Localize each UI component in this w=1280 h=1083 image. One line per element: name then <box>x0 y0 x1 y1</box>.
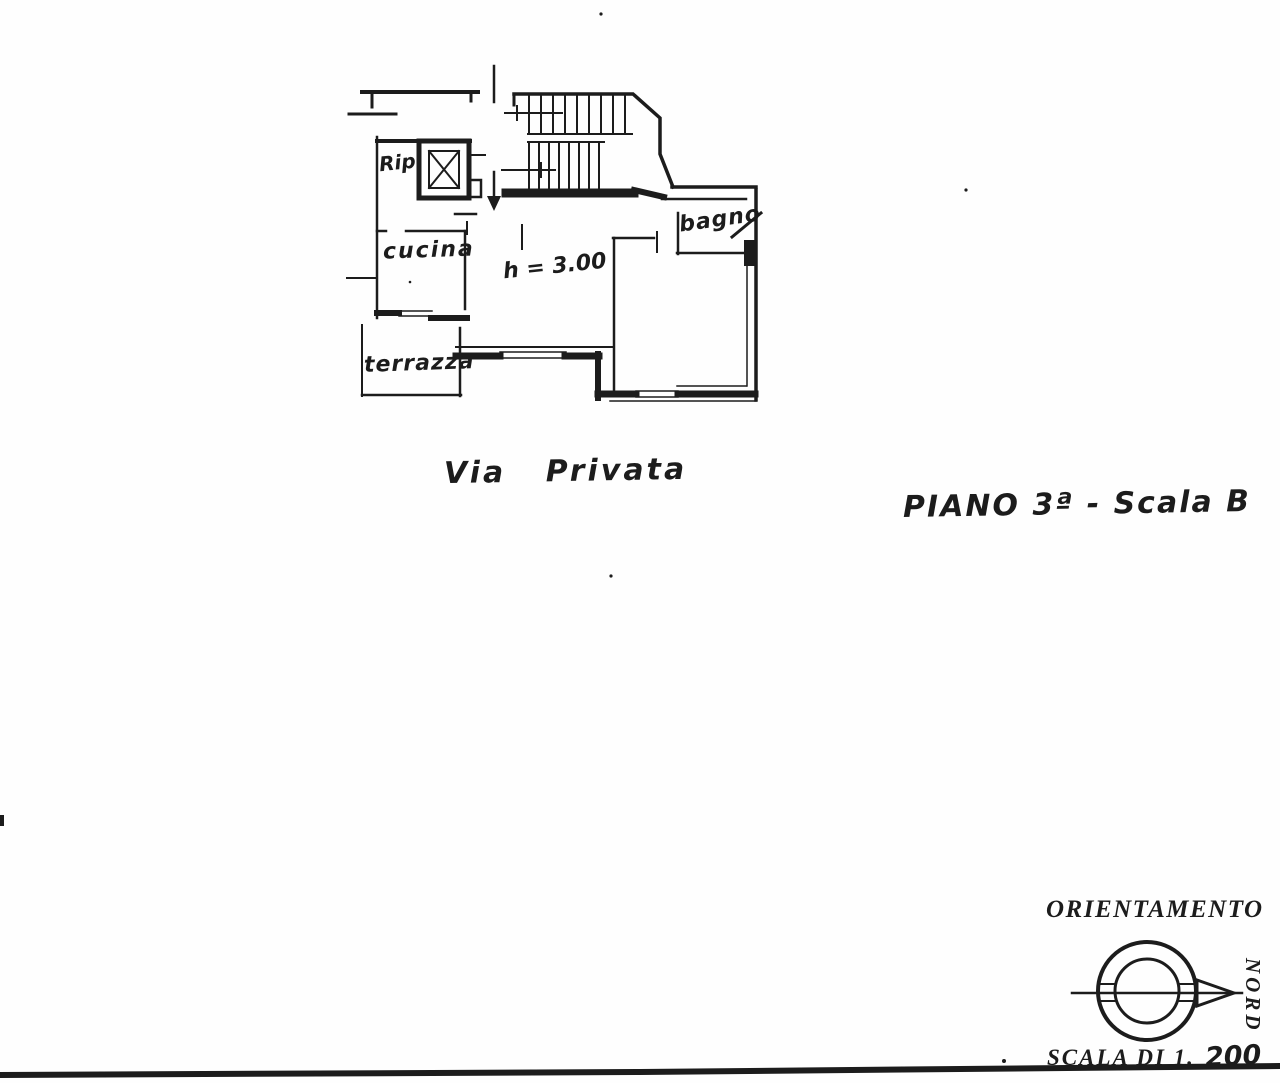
hallway-walls <box>662 187 756 199</box>
floor-title: PIANO 3ª - Scala B <box>903 487 1252 523</box>
room-label-rip: Rip. <box>378 150 424 175</box>
north-label: NORD <box>1242 958 1263 1034</box>
street-label: Via Privata <box>444 455 688 489</box>
stairs-icon <box>502 94 673 197</box>
scanned-floorplan-page: Rip. cucina terrazza bagno h = 3.00 Via … <box>0 0 1280 1083</box>
orientation-title: ORIENTAMENTO <box>1046 897 1264 922</box>
terrazza-walls <box>347 278 461 396</box>
entry-walls <box>349 66 494 114</box>
scale-value: 200 <box>1204 1042 1262 1072</box>
south-walls <box>456 347 756 401</box>
room-label-terrazza: terrazza <box>364 351 475 377</box>
scale-label: SCALA DI 1. <box>1047 1045 1195 1070</box>
compass-icon <box>1072 942 1242 1040</box>
room-label-cucina: cucina <box>383 238 476 263</box>
scale-row: SCALA DI 1.200 <box>1047 1043 1261 1070</box>
down-arrow-icon <box>487 172 501 211</box>
